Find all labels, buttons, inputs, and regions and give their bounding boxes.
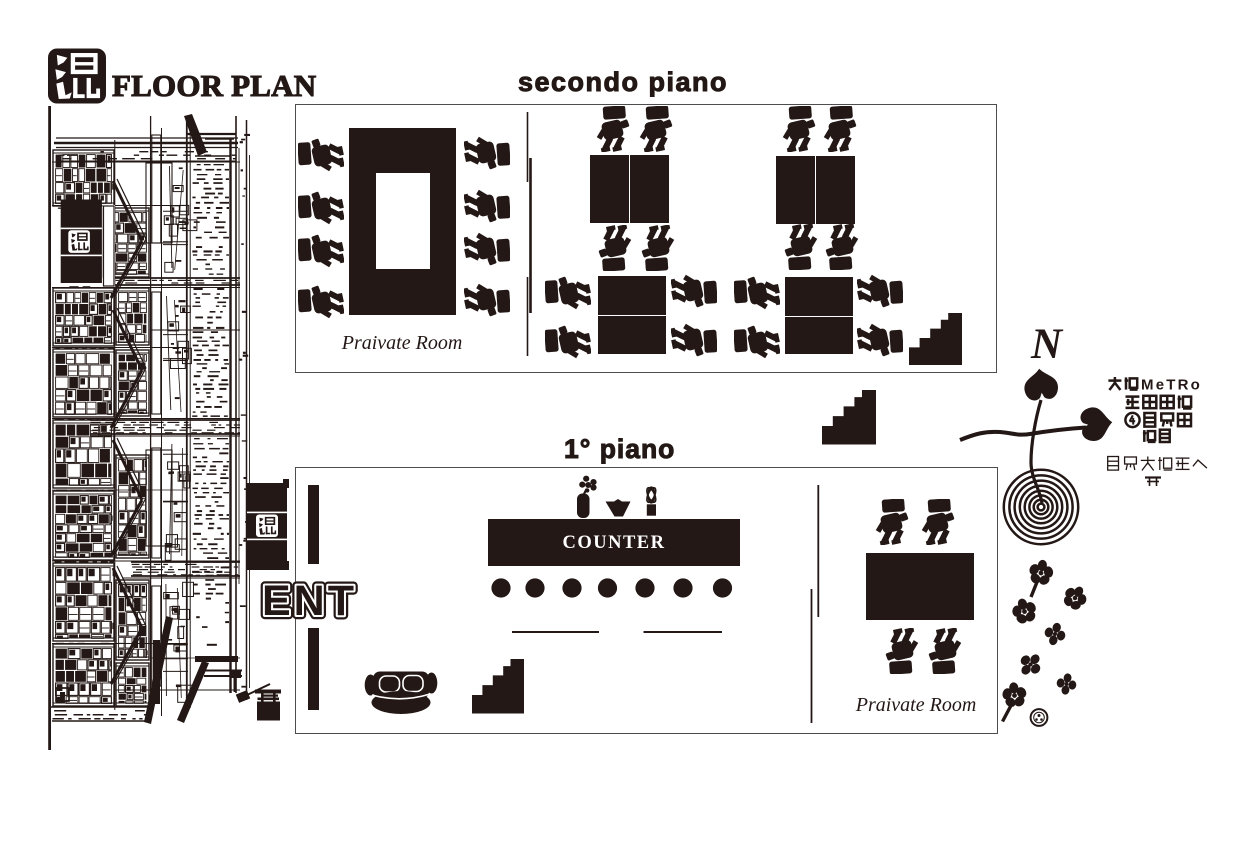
svg-text:MeTRo: MeTRo: [1141, 377, 1202, 394]
svg-text:ENT: ENT: [262, 577, 357, 625]
